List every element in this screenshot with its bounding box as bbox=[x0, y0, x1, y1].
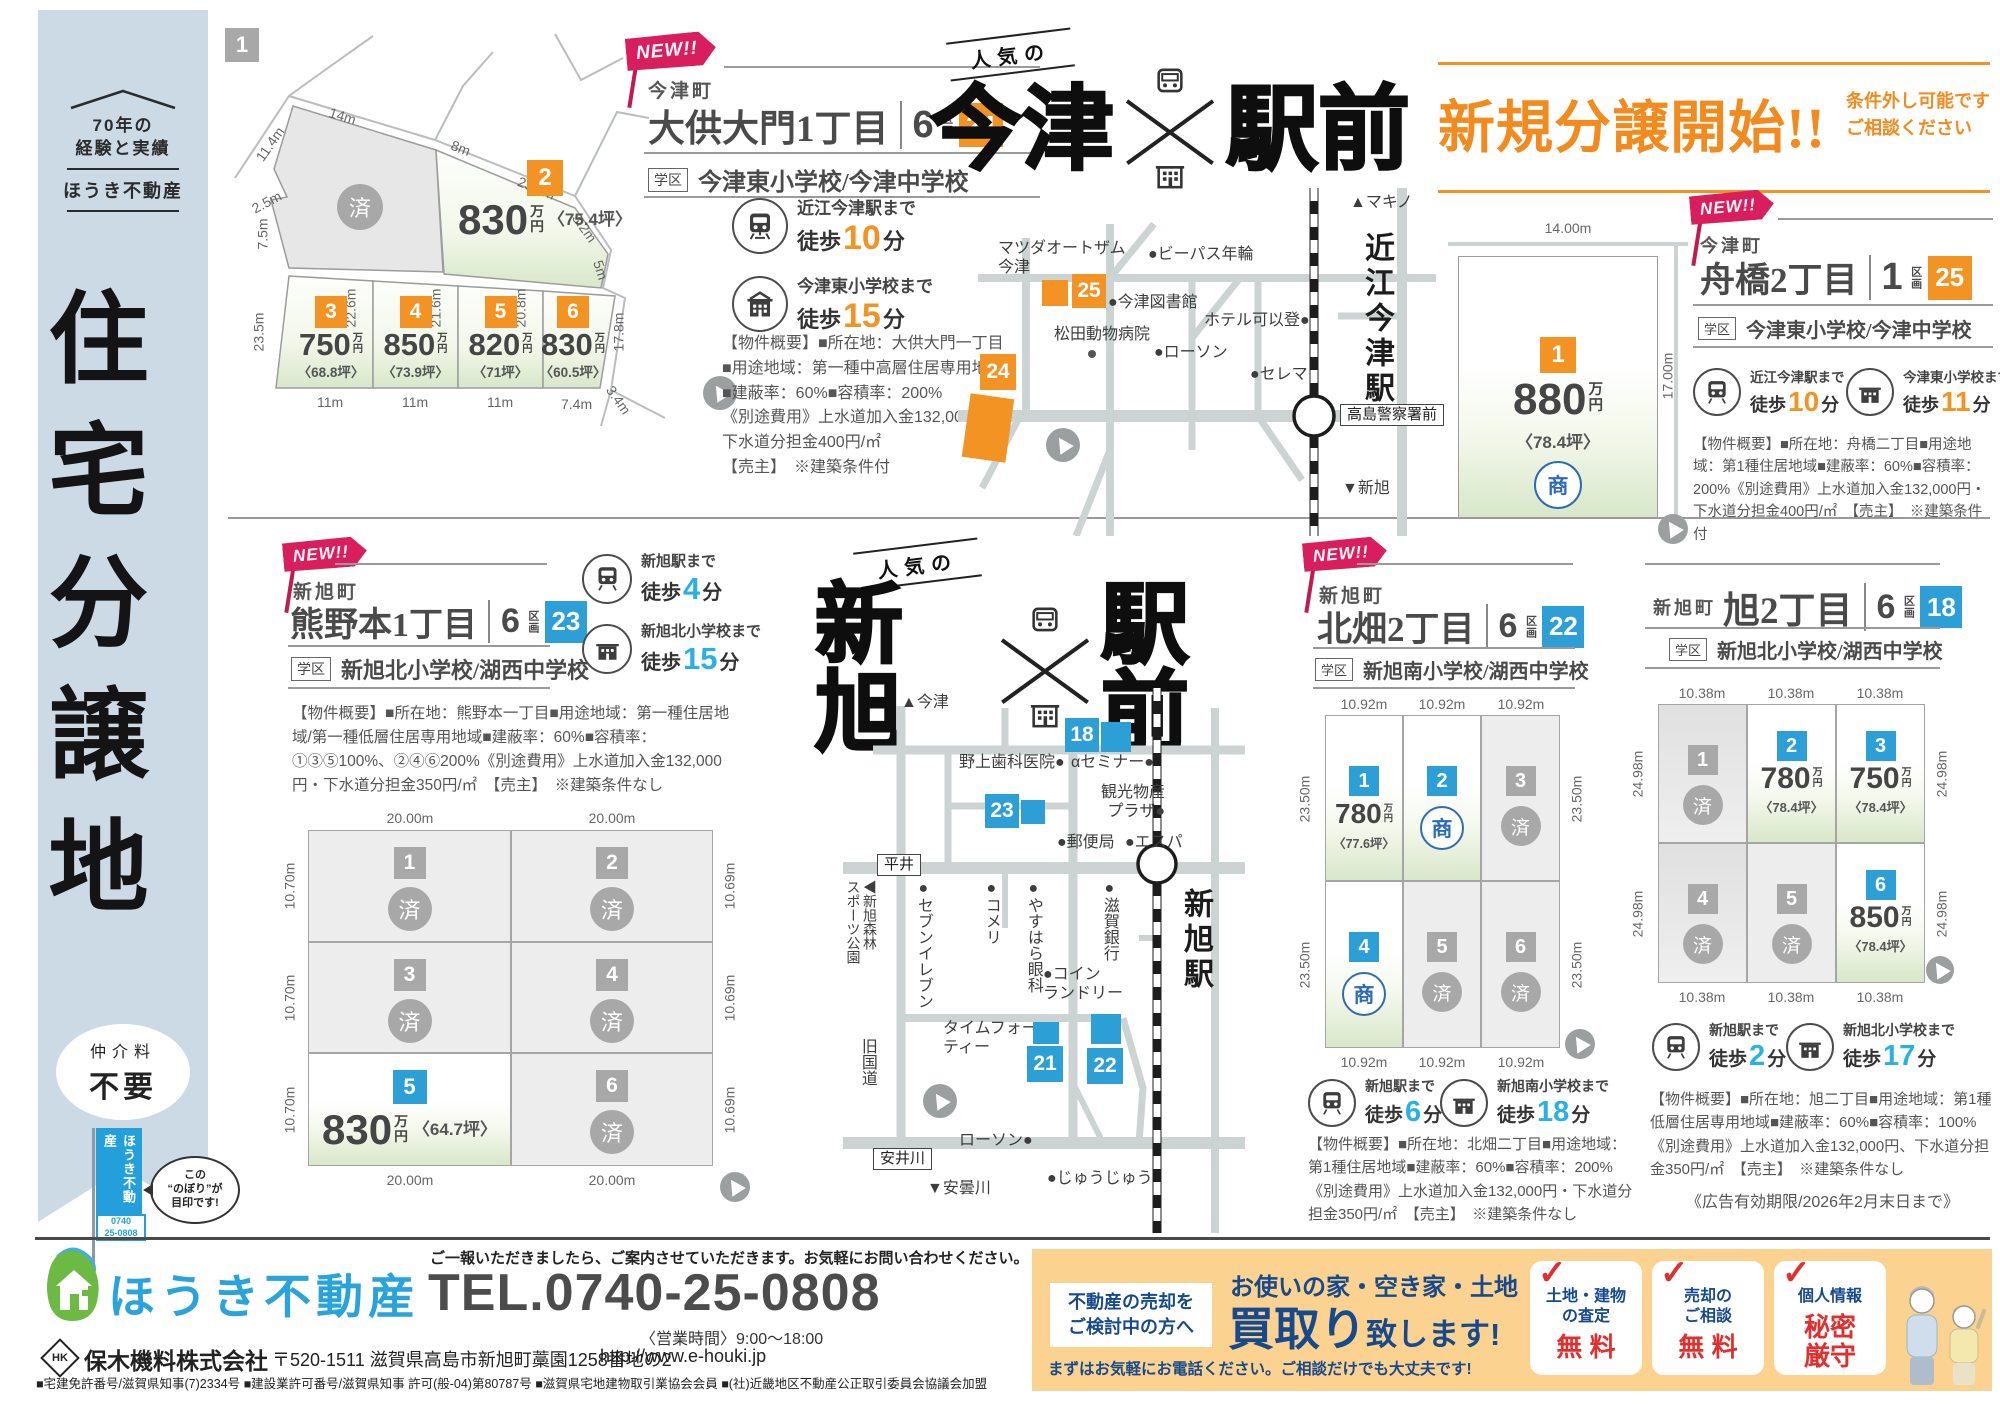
map-road bbox=[1448, 242, 1688, 246]
access-school: 今津東小学校まで 徒歩11分 bbox=[1846, 366, 2000, 418]
train-icon bbox=[1028, 606, 1062, 645]
access-destination: 新旭北小学校まで bbox=[641, 620, 761, 641]
lot-count: 1 bbox=[1882, 256, 1903, 299]
property-overview: 【物件概要】■所在地：熊野本一丁目■用途地域：第一種住居地域/第一種低層住居専用… bbox=[292, 702, 732, 798]
access-train: 新旭駅まで 徒歩6分 bbox=[1308, 1076, 1442, 1129]
divider bbox=[1645, 563, 1940, 565]
map-lot bbox=[1091, 1014, 1121, 1044]
dim-label: 10.70m bbox=[281, 975, 297, 1022]
lot-number: 6 bbox=[1866, 870, 1896, 900]
school-district-label: 学区 bbox=[648, 168, 688, 192]
map-direction-up: ▲今津 bbox=[901, 694, 949, 713]
map-station-name: 近江今津駅 bbox=[1354, 232, 1398, 407]
lotmap-funahashi: 14.00m 1 880万円 〈78.4坪〉 商 17.00m bbox=[1448, 220, 1688, 542]
lot-5: 5 済 bbox=[1747, 843, 1836, 983]
lot-number: 3 bbox=[394, 959, 426, 991]
walk-minutes: 6 bbox=[1405, 1096, 1421, 1128]
lot-number: 5 bbox=[1427, 932, 1457, 962]
lot-5: 5 済 bbox=[1403, 881, 1481, 1048]
lot-6: 6 済 bbox=[1481, 881, 1560, 1048]
compass-icon bbox=[1926, 956, 1954, 984]
promo-headline2: 買取り致します! bbox=[1228, 1293, 1500, 1359]
new-sale-banner: 新規分譲開始!! 条件外し可能です ご相談ください bbox=[1438, 58, 1990, 200]
access-train: 新旭駅まで 徒歩2分 bbox=[1652, 1020, 1786, 1073]
lot-number: 4 bbox=[596, 959, 628, 991]
school-icon bbox=[582, 624, 632, 674]
houki-logo bbox=[42, 1246, 102, 1322]
walk-minutes: 2 bbox=[1749, 1040, 1765, 1072]
lot-6: 6 済 bbox=[511, 1053, 713, 1166]
footer-phone: TEL.0740-25-0808 bbox=[428, 1263, 881, 1323]
dim-label: 10.69m bbox=[721, 863, 737, 910]
map-lot-18: 18 bbox=[1065, 718, 1099, 752]
train-icon bbox=[1308, 1079, 1356, 1127]
map-poi: ●やすはら眼科 bbox=[1023, 880, 1042, 993]
property-badge: 23 bbox=[545, 601, 587, 643]
commercial-mark: 商 bbox=[1420, 806, 1464, 850]
lot-1: 1 済 bbox=[1658, 704, 1747, 843]
new-flag: NEW!! bbox=[1302, 535, 1388, 572]
access-destination: 今津東小学校まで bbox=[1903, 366, 2000, 386]
access-destination: 新旭南小学校まで bbox=[1497, 1076, 1609, 1096]
promo-sub: まずはお気軽にお電話ください。ご相談だけでも大丈夫です! bbox=[1048, 1357, 1472, 1379]
dim-label: 24.98m bbox=[1933, 891, 1949, 938]
times-icon bbox=[1114, 71, 1226, 189]
access-destination: 今津東小学校まで bbox=[797, 272, 933, 297]
dim-label: 10.92m bbox=[1412, 696, 1472, 712]
access-destination: 新旭駅まで bbox=[1365, 1076, 1442, 1096]
lot-number: 4 bbox=[1349, 932, 1379, 962]
train-icon bbox=[1693, 368, 1741, 416]
check-icon: ✓ bbox=[1782, 1253, 1811, 1293]
subdivision-name: 大供大門1丁目 bbox=[648, 98, 889, 152]
lot-count-unit: 区画 bbox=[1910, 266, 1921, 290]
map-direction-down: ▼新旭 bbox=[1342, 480, 1390, 499]
map-poi: ●郵便局 bbox=[1057, 834, 1115, 853]
subdivision-name: 舟橋2丁目 bbox=[1700, 252, 1858, 303]
school-district: 新旭北小学校/湖西中学校 bbox=[1717, 635, 1943, 664]
map-poi: ●コメリ bbox=[981, 880, 1000, 945]
speech-bubble: この “のぼり”が 目印です! bbox=[150, 1156, 240, 1224]
sidebar-brand: ほうき不動産 bbox=[38, 177, 208, 203]
divider bbox=[1357, 563, 1573, 565]
title-area-name: 今津 bbox=[930, 84, 1114, 176]
school-icon bbox=[1786, 1023, 1834, 1071]
footer-url: http://www.e-houki.jp bbox=[600, 1346, 766, 1367]
compass-icon bbox=[1046, 428, 1080, 462]
map-lot bbox=[1042, 280, 1068, 306]
walk-minutes: 10 bbox=[843, 219, 881, 257]
walk-minutes: 18 bbox=[1537, 1096, 1569, 1128]
dim-label: 11m bbox=[317, 394, 343, 410]
area-map-imazu: ▲マキノ マツダオートザム 今津 ●ビーパス年輪 25 ●今津図書館 24 松田… bbox=[958, 188, 1436, 536]
map-dot bbox=[1088, 350, 1096, 358]
lot-3: 3 750万円 〈68.8坪〉 bbox=[289, 296, 373, 381]
map-poi: ●ビーパス年輪 bbox=[1148, 246, 1254, 265]
sold-mark: 済 bbox=[1683, 785, 1723, 825]
map-poi: ●コイン ランドリー bbox=[1043, 966, 1123, 1004]
dim-label: 10.38m bbox=[1761, 685, 1821, 701]
buyback-promo: 不動産の売却を ご検討中の方へ お使いの家・空き家・土地 買取り致します! まず… bbox=[1032, 1249, 1992, 1391]
compass-icon bbox=[1658, 514, 1688, 544]
footer-company: 保木機料株式会社 bbox=[84, 1342, 268, 1376]
lotmap-kitabata: 1 780万円 〈77.6坪〉 2 商 3 済 4 商 5 済 6 済 10.9… bbox=[1325, 715, 1560, 1048]
lot-5: 5 830万円〈64.7坪〉 bbox=[308, 1053, 511, 1166]
lot-number: 2 bbox=[1777, 731, 1807, 761]
check-icon: ✓ bbox=[1660, 1253, 1689, 1293]
lot-number: 3 bbox=[1866, 731, 1896, 761]
map-poi: マツダオートザム 今津 bbox=[998, 240, 1126, 278]
walk-minutes: 15 bbox=[843, 297, 881, 335]
divider bbox=[67, 210, 179, 212]
map-poi: 野上歯科医院● bbox=[959, 754, 1065, 773]
dim-label: 20.00m bbox=[562, 810, 662, 826]
lot-1: 1 780万円 〈77.6坪〉 bbox=[1325, 715, 1403, 881]
map-lot bbox=[1101, 722, 1131, 752]
map-poi: ●今津図書館 bbox=[1108, 294, 1198, 313]
divider bbox=[1693, 304, 1993, 306]
property-badge: 25 bbox=[1928, 256, 1972, 300]
property-overview: 【物件概要】■所在地：旭二丁目■用途地域：第1種低層住居専用地域■建蔽率：60%… bbox=[1650, 1088, 1995, 1181]
lot-number: 6 bbox=[596, 1070, 628, 1102]
map-poi: ●じゅうじゅう bbox=[1047, 1170, 1153, 1189]
dim-label: 7.5m bbox=[255, 218, 271, 249]
map-poi: ●ローソン bbox=[1154, 344, 1228, 363]
lot-number: 1 bbox=[394, 847, 426, 879]
school-district: 今津東小学校/今津中学校 bbox=[1746, 314, 1972, 343]
no-brokerage-fee-badge: 仲介料不要 bbox=[56, 1024, 190, 1120]
lot-number: 4 bbox=[1688, 884, 1718, 914]
town-label: 新旭町 bbox=[1653, 594, 1716, 620]
map-direction-up: ▲マキノ bbox=[1350, 194, 1413, 213]
school-district: 今津東小学校/今津中学校 bbox=[698, 162, 969, 197]
dim-label: 23.50m bbox=[1568, 942, 1584, 989]
map-poi: ◀新旭森林 スポーツ公園 bbox=[845, 880, 878, 964]
dim-label: 10.92m bbox=[1412, 1054, 1472, 1070]
access-school: 新旭南小学校まで 徒歩18分 bbox=[1440, 1076, 1609, 1129]
dim-label: 23.50m bbox=[1296, 942, 1312, 989]
dim-label: 10.69m bbox=[721, 1087, 737, 1134]
section-kumanohon: NEW!! 新旭町 熊野本1丁目 6 区画 23 学区 新旭北小学校/湖西中学校 bbox=[285, 543, 565, 703]
map-poi: ●エスパ bbox=[1125, 834, 1183, 853]
train-icon bbox=[732, 198, 788, 254]
map-lot bbox=[1033, 1022, 1059, 1044]
lot-4: 4 商 bbox=[1325, 881, 1403, 1048]
access-destination: 新旭北小学校まで bbox=[1843, 1020, 1955, 1040]
promo-card-consult: ✓ 売却の ご相談無 料 bbox=[1652, 1261, 1764, 1375]
sold-mark: 済 bbox=[1501, 806, 1541, 846]
subdivision-name: 北畑2丁目 bbox=[1317, 601, 1475, 652]
dim-label: 10.69m bbox=[721, 975, 737, 1022]
map-poi: ●滋賀銀行 bbox=[1099, 880, 1118, 961]
dim-label: 10.70m bbox=[281, 863, 297, 910]
walk-minutes: 17 bbox=[1883, 1040, 1915, 1072]
dim-label: 10.70m bbox=[281, 1087, 297, 1134]
check-icon: ✓ bbox=[1538, 1253, 1567, 1293]
lot-3: 3 済 bbox=[308, 942, 511, 1053]
divider bbox=[1778, 218, 1993, 220]
dim-label: 23.5m bbox=[250, 313, 266, 352]
promo-lead: 不動産の売却を ご検討中の方へ bbox=[1050, 1283, 1212, 1347]
dim-label: 10.38m bbox=[1672, 989, 1732, 1005]
compass-icon bbox=[923, 1084, 957, 1118]
divider bbox=[1438, 62, 1990, 65]
map-lot-21: 21 bbox=[1027, 1046, 1063, 1082]
school-district-label: 学区 bbox=[1315, 658, 1353, 681]
school-district: 新旭北小学校/湖西中学校 bbox=[341, 653, 589, 685]
people-illustration bbox=[1900, 1267, 1986, 1387]
section-asahi: 新旭町 旭2丁目 6 区画 18 学区 新旭北小学校/湖西中学校 bbox=[1645, 560, 1990, 680]
lot-number: 3 bbox=[315, 296, 347, 328]
walk-minutes: 4 bbox=[683, 571, 700, 606]
dim-label: 10.92m bbox=[1334, 696, 1394, 712]
lot-number: 2 bbox=[1427, 766, 1457, 796]
dim-label: 7.4m bbox=[561, 396, 592, 412]
school-district-label: 学区 bbox=[1698, 317, 1736, 340]
sold-mark: 済 bbox=[590, 999, 634, 1043]
map-station-name: 新旭駅 bbox=[1173, 888, 1217, 993]
title-imazu-ekimae: 人気の 今津 駅前 bbox=[930, 35, 1440, 195]
lotmap-asahi: 1 済 2 780万円 〈78.4坪〉 3 750万円 〈78.4坪〉 4 済 … bbox=[1658, 704, 1925, 983]
footer-licenses: ■宅建免許番号/滋賀県知事(7)2334号 ■建設業許可番号/滋賀県知事 許可(… bbox=[36, 1373, 987, 1392]
section-kitabata: NEW!! 新旭町 北畑2丁目 6 区画 22 学区 新旭南小学校/湖西中学校 bbox=[1305, 543, 1585, 703]
footer-brand: ほうき不動産 bbox=[108, 1258, 420, 1327]
dim-label: 10.92m bbox=[1491, 696, 1551, 712]
access-train: 近江今津駅まで 徒歩10分 bbox=[1693, 366, 1845, 418]
roof-chevron-icon bbox=[63, 88, 183, 110]
lot-number: 2 bbox=[596, 847, 628, 879]
dim-label: 11m bbox=[487, 394, 513, 410]
walk-minutes: 11 bbox=[1941, 386, 1971, 417]
main-title-vertical: 住宅分譲地 bbox=[38, 226, 138, 1006]
banner-title: 新規分譲開始!! bbox=[1438, 82, 1826, 164]
area-map-shinasahi: ▲今津 18 野上歯科医院● αセミナー● 23 観光物産 プラザ● ●郵便局 … bbox=[843, 688, 1245, 1233]
school-icon bbox=[732, 276, 788, 332]
map-poi: ローソン● bbox=[959, 1132, 1033, 1151]
school-icon bbox=[1440, 1079, 1488, 1127]
map-lot-25: 25 bbox=[1072, 274, 1106, 308]
sold-mark: 済 bbox=[1501, 972, 1541, 1012]
lot-count: 6 bbox=[501, 602, 520, 641]
dim-label: 23.50m bbox=[1296, 776, 1312, 823]
lot-4: 4 済 bbox=[511, 942, 713, 1053]
new-flag: NEW!! bbox=[1689, 188, 1775, 225]
property-overview: 【物件概要】■所在地：北畑二丁目■用途地域：第1種住居地域■建蔽率：60%■容積… bbox=[1308, 1133, 1638, 1226]
lot-count: 6 bbox=[1877, 588, 1896, 627]
property-overview: 【物件概要】■所在地：舟橋二丁目■用途地域：第1種住居地域■建蔽率：60%■容積… bbox=[1693, 434, 1995, 546]
ad-expiry-note: 《広告有効期限/2026年2月末日まで》 bbox=[1650, 1188, 1995, 1212]
lot-count-unit: 区画 bbox=[1902, 595, 1913, 619]
lot-4: 4 済 bbox=[1658, 843, 1747, 983]
train-icon bbox=[1153, 67, 1187, 106]
dim-label: 20.00m bbox=[360, 1172, 460, 1188]
subdivision-name: 旭2丁目 bbox=[1723, 580, 1853, 634]
sold-mark: 済 bbox=[388, 887, 432, 931]
divider bbox=[335, 563, 547, 565]
lot-6: 6 850万円 〈78.4坪〉 bbox=[1836, 843, 1925, 983]
dim-label: 10.38m bbox=[1672, 685, 1732, 701]
map-poi: ●セレマ bbox=[1250, 366, 1308, 385]
map-poi: ホテル可以登● bbox=[1204, 312, 1310, 331]
walk-minutes: 15 bbox=[683, 641, 717, 676]
lot-1: 1 済 bbox=[308, 830, 511, 942]
map-direction-down: ▼安曇川 bbox=[927, 1180, 991, 1199]
access-train: 近江今津駅まで 徒歩10分 bbox=[732, 194, 916, 258]
dim-label: 24.98m bbox=[1933, 751, 1949, 798]
lot-4: 4 850万円 〈73.9坪〉 bbox=[373, 296, 458, 381]
title-ekimae: 駅前 bbox=[1226, 84, 1410, 176]
divider bbox=[288, 687, 550, 689]
dim-label: 10.92m bbox=[1334, 1054, 1394, 1070]
school-district-label: 学区 bbox=[1669, 638, 1707, 661]
new-flag: NEW!! bbox=[282, 535, 368, 572]
map-poi: 観光物産 プラザ● bbox=[1101, 784, 1165, 822]
noboru-flag-text: ほうき不動産 bbox=[100, 1134, 138, 1214]
lotmap-kumanohon: 1 済 2 済 3 済 4 済 5 830万円〈64.7坪〉 6 済 20.00… bbox=[308, 830, 713, 1166]
subdivision-name: 熊野本1丁目 bbox=[290, 597, 477, 646]
lot-number: 5 bbox=[485, 296, 517, 328]
sold-mark: 済 bbox=[337, 184, 383, 230]
banner-note: 条件外し可能です ご相談ください bbox=[1846, 88, 1990, 142]
commercial-mark: 商 bbox=[1342, 972, 1386, 1016]
dim-label: 10.38m bbox=[1761, 989, 1821, 1005]
lot-number: 6 bbox=[1506, 932, 1536, 962]
map-poi: ●セブンイレブン bbox=[913, 880, 932, 1009]
lot-5: 5 820万円 〈71坪〉 bbox=[458, 296, 543, 381]
lot-2: 2 商 bbox=[1403, 715, 1481, 881]
school-icon bbox=[1846, 368, 1894, 416]
map-lot-23: 23 bbox=[985, 794, 1019, 828]
dim-label: 17.00m bbox=[1659, 353, 1675, 400]
access-school: 新旭北小学校まで 徒歩17分 bbox=[1786, 1020, 1955, 1073]
promo-card-privacy: ✓ 個人情報秘密 厳守 bbox=[1774, 1261, 1886, 1375]
map-poi: 松田動物病院 bbox=[1054, 326, 1150, 345]
sold-mark: 済 bbox=[1683, 924, 1723, 964]
map-poi: αセミナー● bbox=[1071, 754, 1154, 773]
access-destination: 新旭駅まで bbox=[641, 550, 722, 571]
map-place-label: 平井 bbox=[877, 854, 921, 876]
hk-mark-icon: HK bbox=[40, 1338, 80, 1378]
divider bbox=[288, 645, 550, 647]
dim-label: 11m bbox=[402, 394, 428, 410]
map-lot-22: 22 bbox=[1087, 1048, 1123, 1084]
access-school: 新旭北小学校まで 徒歩15分 bbox=[582, 620, 761, 677]
sold-mark: 済 bbox=[590, 1110, 634, 1154]
lot-number: 5 bbox=[393, 1070, 427, 1104]
sold-mark: 済 bbox=[1422, 972, 1462, 1012]
map-lot bbox=[1021, 800, 1045, 824]
map-road-label: 旧国道 bbox=[857, 1038, 876, 1086]
lot-2: 2 830万円〈75.4坪〉 bbox=[450, 160, 640, 239]
commercial-mark: 商 bbox=[1534, 461, 1582, 509]
dim-label: 23.50m bbox=[1568, 776, 1584, 823]
sold-mark: 済 bbox=[590, 887, 634, 931]
dim-label: 24.98m bbox=[1629, 751, 1645, 798]
divider bbox=[1313, 687, 1575, 689]
lot-count-unit: 区画 bbox=[527, 610, 538, 634]
lot-2: 2 780万円 〈78.4坪〉 bbox=[1747, 704, 1836, 843]
lot-number: 2 bbox=[527, 160, 563, 196]
sidebar-tagline: 70年の経験と実績 bbox=[38, 115, 208, 161]
train-icon bbox=[1652, 1023, 1700, 1071]
map-lot bbox=[962, 393, 1014, 463]
lot-1: 1 880万円 〈78.4坪〉 商 bbox=[1458, 256, 1658, 518]
dim-label: 10.38m bbox=[1850, 989, 1910, 1005]
divider bbox=[1645, 627, 1940, 629]
dim-label: 20.00m bbox=[360, 810, 460, 826]
divider bbox=[67, 168, 179, 170]
divider bbox=[35, 1237, 1990, 1240]
section-funahashi: 14.00m 1 880万円 〈78.4坪〉 商 17.00m NEW!! 今津… bbox=[1448, 190, 1993, 545]
lot-3: 3 済 bbox=[1481, 715, 1560, 881]
divider bbox=[1645, 667, 1940, 669]
divider bbox=[1693, 346, 1993, 348]
dim-label: 24.98m bbox=[1629, 891, 1645, 938]
lot-number: 5 bbox=[1777, 884, 1807, 914]
new-flag: NEW!! bbox=[625, 30, 718, 72]
map-place-label: 安井川 bbox=[873, 1148, 932, 1170]
lot-number: 4 bbox=[400, 296, 432, 328]
dim-label: 10.38m bbox=[1850, 685, 1910, 701]
access-school: 今津東小学校まで 徒歩15分 bbox=[732, 272, 933, 336]
noboru-flag: ほうき不動産 074025-0808 bbox=[96, 1128, 148, 1241]
sidebar-ribbon: 70年の経験と実績 ほうき不動産 住宅分譲地 仲介料不要 bbox=[38, 10, 208, 1222]
lot-6: 6 830万円 〈60.5坪〉 bbox=[537, 296, 609, 381]
lot-count: 6 bbox=[1499, 607, 1518, 646]
dim-label: 10.92m bbox=[1491, 1054, 1551, 1070]
walk-minutes: 10 bbox=[1788, 386, 1819, 417]
access-destination: 新旭駅まで bbox=[1709, 1020, 1786, 1040]
sold-mark: 済 bbox=[1772, 924, 1812, 964]
lot-number: 1 bbox=[1540, 337, 1576, 373]
promo-card-assessment: ✓ 土地・建物 の査定無 料 bbox=[1530, 1261, 1642, 1375]
divider bbox=[1313, 647, 1575, 649]
access-train: 新旭駅まで 徒歩4分 bbox=[582, 550, 722, 607]
train-icon bbox=[582, 554, 632, 604]
dim-label: 20.00m bbox=[562, 1172, 662, 1188]
compass-icon bbox=[720, 1172, 750, 1202]
dim-label: 14.00m bbox=[1508, 220, 1628, 236]
school-district: 新旭南小学校/湖西中学校 bbox=[1363, 655, 1589, 684]
map-bus-stop: 高島警察署前 bbox=[1340, 404, 1444, 426]
lot-number: 1 bbox=[1349, 766, 1379, 796]
property-badge: 18 bbox=[1920, 586, 1962, 628]
property-badge: 22 bbox=[1542, 606, 1584, 648]
school-district-label: 学区 bbox=[291, 657, 331, 681]
lot-number: 3 bbox=[1506, 766, 1536, 796]
sold-mark: 済 bbox=[388, 999, 432, 1043]
lot-number: 6 bbox=[557, 296, 589, 328]
lot-3: 3 750万円 〈78.4坪〉 bbox=[1836, 704, 1925, 843]
lot-number: 1 bbox=[1688, 745, 1718, 775]
access-destination: 近江今津駅まで bbox=[1750, 366, 1845, 386]
flyer-page: 70年の経験と実績 ほうき不動産 住宅分譲地 仲介料不要 ほうき不動産 0740… bbox=[0, 0, 2000, 1413]
lot-2: 2 済 bbox=[511, 830, 713, 942]
access-destination: 近江今津駅まで bbox=[797, 194, 916, 219]
title-shinasahi-ekimae: 人気の 新旭 駅前 bbox=[815, 545, 1275, 705]
lot-count-unit: 区画 bbox=[1524, 615, 1535, 639]
map-lot-24: 24 bbox=[980, 354, 1016, 390]
compass-icon bbox=[1565, 1029, 1595, 1059]
